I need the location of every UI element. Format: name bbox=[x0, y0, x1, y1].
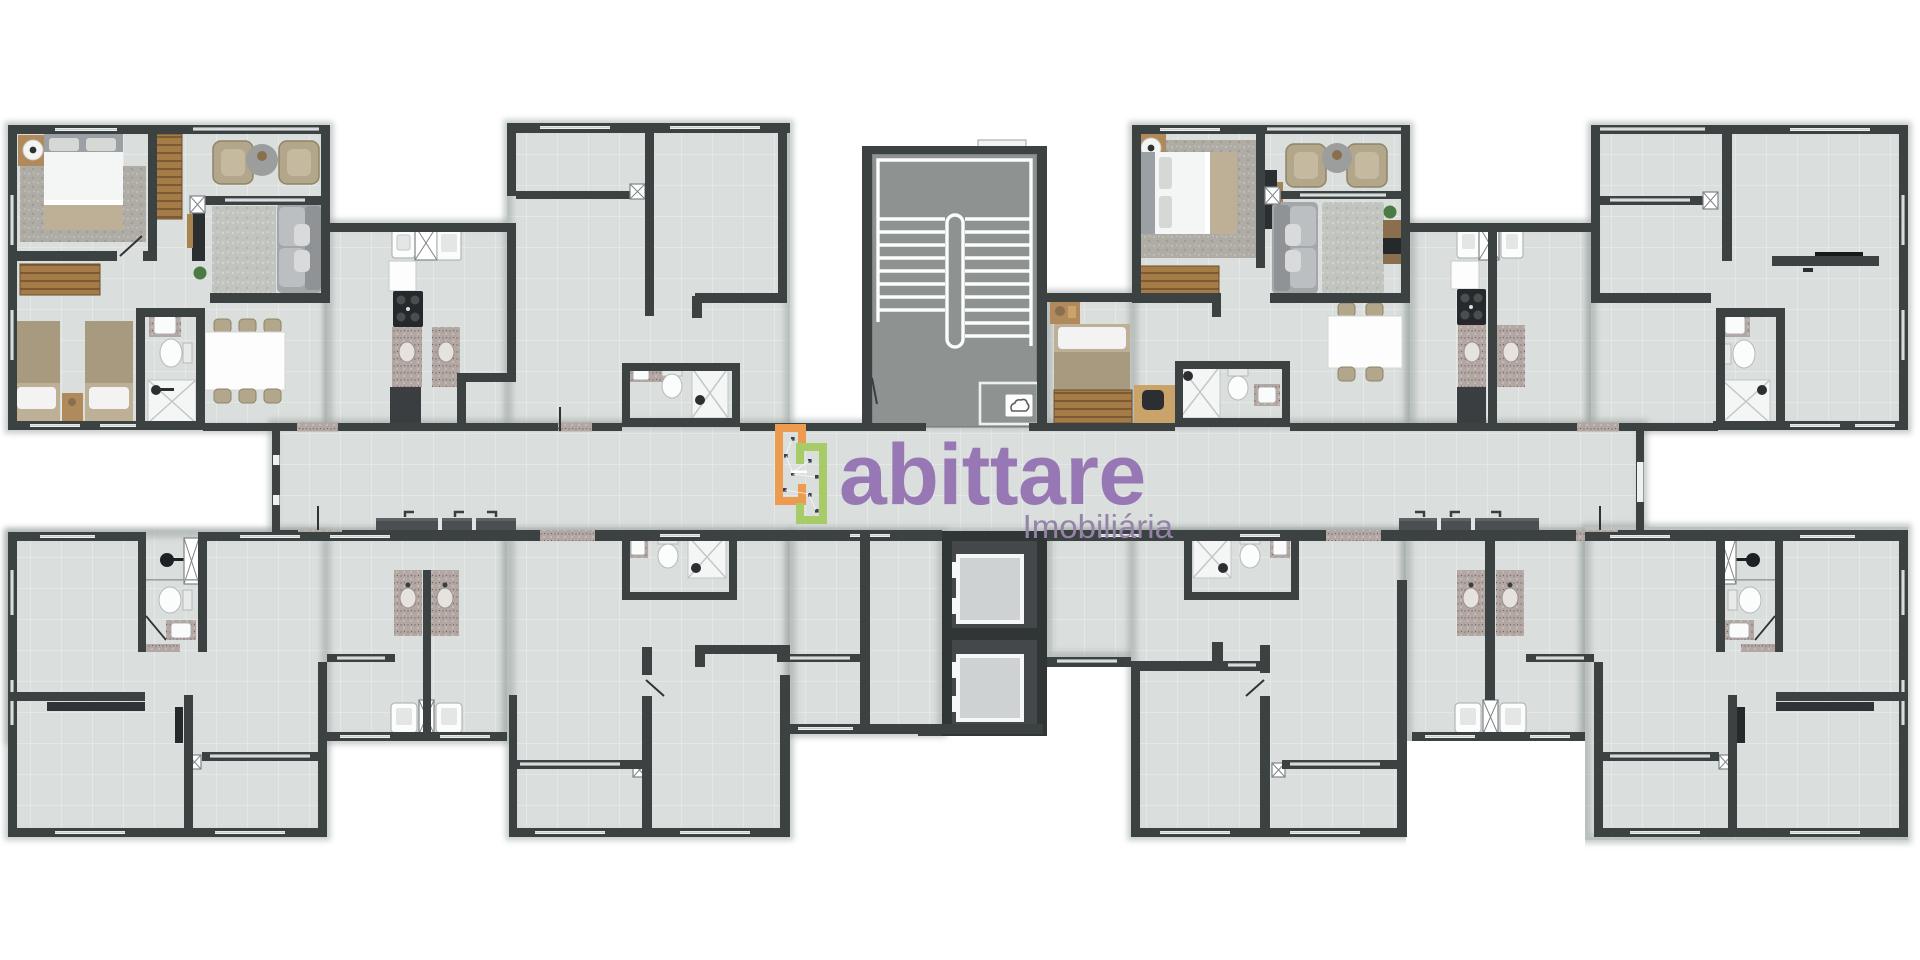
svg-text:Imobiliária: Imobiliária bbox=[1023, 508, 1174, 545]
